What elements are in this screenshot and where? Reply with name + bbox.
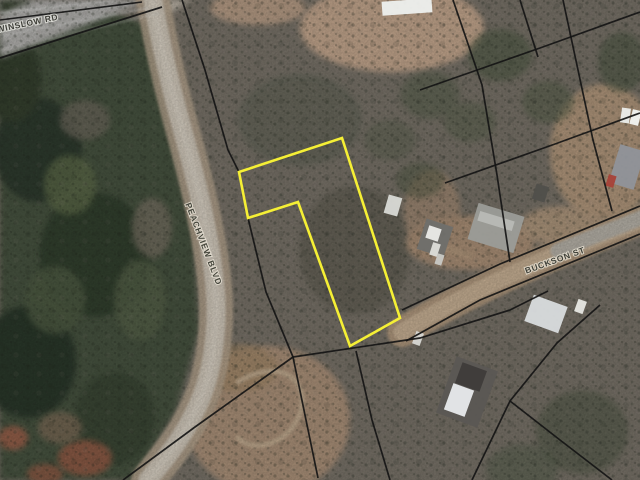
- photo-grain: [0, 0, 640, 480]
- parcel-map-viewer: WINSLOW RDPEACHVIEW BLVDBUCKSON ST: [0, 0, 640, 480]
- aerial-map-canvas[interactable]: WINSLOW RDPEACHVIEW BLVDBUCKSON ST: [0, 0, 640, 480]
